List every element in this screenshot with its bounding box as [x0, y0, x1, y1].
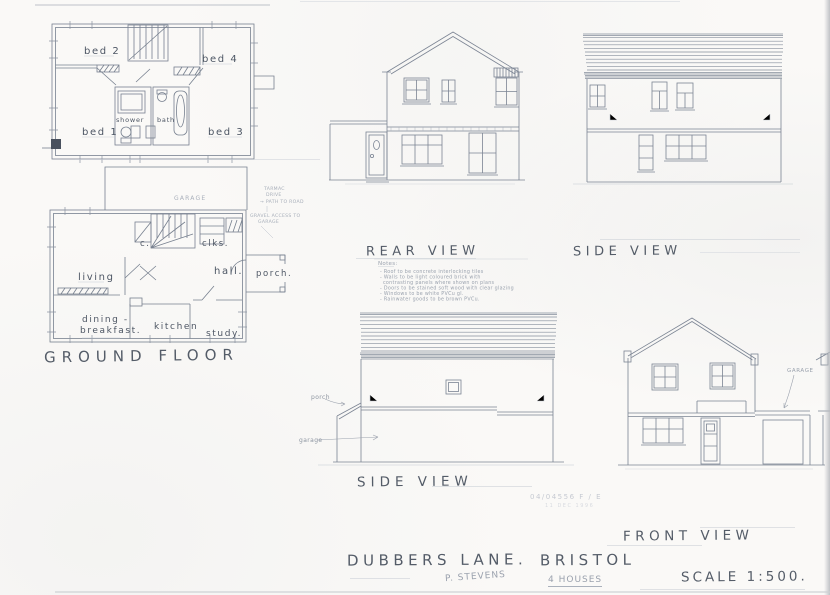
guide-rule [640, 589, 805, 590]
note-arrows [317, 399, 378, 440]
room-label-cloaks: clks. [202, 239, 229, 249]
notes-line-4: - Doors to be stained soft wood with cle… [380, 286, 514, 292]
rear-elevation-drawing [325, 28, 530, 246]
pencil-houses-note: 4 HOUSES [548, 575, 602, 587]
room-label-bed3: bed 3 [208, 127, 244, 138]
notes-line-3: contrasting panels where shown on plans [383, 280, 495, 286]
site-annotations: TARMAC DRIVE → PATH TO ROAD GRAVEL ACCES… [250, 186, 304, 225]
front-lines [618, 318, 830, 465]
notes-heading: Notes: [378, 261, 398, 267]
annotation-drive-2: DRIVE [266, 192, 282, 198]
side-elevation-bottom-drawing: porch garage [298, 293, 583, 498]
guide-rule [350, 578, 410, 579]
scan-edge-bottom [55, 591, 830, 593]
office-stamp-date: 11 DEC 1996 [545, 503, 594, 509]
first-floor-walls [42, 24, 274, 159]
guide-rule [600, 239, 800, 240]
guide-rule [700, 527, 795, 528]
roof-tile-lines [360, 313, 557, 359]
annotation-access-1: GRAVEL ACCESS TO [250, 213, 300, 219]
room-label-garage: GARAGE [174, 195, 206, 202]
first-floor-plan-drawing: bed 2 bed 4 bed 1 bed 3 shower bath [40, 8, 280, 176]
room-label-kitchen: kitchen [154, 322, 198, 332]
side-top-lines [587, 79, 781, 182]
annotation-drive-1: TARMAC [263, 186, 285, 192]
garage-note-arrow [784, 375, 794, 408]
scale-label: SCALE 1:500. [681, 568, 808, 585]
room-label-living: living [78, 272, 115, 283]
front-elevation-drawing: GARAGE [613, 308, 830, 478]
room-label-bed4: bed 4 [202, 54, 238, 65]
brick-band-ticks [391, 127, 511, 131]
guide-rule [75, 159, 320, 160]
pencil-author-note: P. STEVENS [445, 570, 506, 584]
scan-edge-top-mid [300, 1, 680, 2]
label-guidelines [82, 56, 242, 137]
room-label-cupboard: c. [140, 239, 151, 249]
annotation-access-2: GARAGE [258, 219, 279, 225]
pencil-setout-marks [573, 114, 793, 184]
side-view-top-label: SIDE VIEW [573, 244, 682, 260]
rear-elevation-lines [329, 32, 525, 182]
scan-edge-right [824, 0, 830, 595]
first-floor-window-ticks [49, 21, 258, 163]
guide-rule [700, 252, 800, 253]
notes-line-2: - Walls to be light coloured brick with [380, 275, 481, 281]
ground-floor-title: GROUND FLOOR [44, 346, 239, 367]
project-title-street: DUBBERS LANE. [347, 550, 527, 569]
room-label-shower: shower [116, 116, 144, 124]
scan-edge-top-left [35, 4, 270, 6]
room-label-bed1: bed 1 [82, 127, 118, 138]
guide-rule [356, 258, 476, 259]
side-view-bottom-label: SIDE VIEW [357, 473, 473, 490]
notes-line-1: - Roof to be concrete interlocking tiles [380, 269, 484, 275]
side-bottom-lines [333, 359, 564, 462]
room-label-bath: bath [157, 116, 175, 124]
room-label-bed2: bed 2 [84, 46, 120, 57]
project-title-city: BRISTOL [540, 551, 636, 570]
room-label-hall: hall. [214, 266, 243, 277]
room-label-porch: porch. [256, 269, 292, 279]
plan-corner-block [51, 139, 61, 149]
roof-tile-lines [583, 34, 783, 79]
garage-note: garage [299, 437, 323, 444]
guide-rule [432, 486, 532, 487]
room-label-study: study. [206, 329, 242, 339]
annotation-drive-3: → PATH TO ROAD [260, 199, 304, 205]
ground-floor-plan-drawing: living hall. kitchen study. dining - bre… [30, 160, 302, 370]
guide-rule [607, 545, 702, 546]
room-label-dining-1: dining - [82, 315, 129, 325]
front-view-label: FRONT VIEW [623, 527, 754, 544]
side-elevation-top-drawing [565, 22, 800, 227]
office-stamp-ref: 04/04556 F / E [530, 493, 602, 501]
room-label-dining-2: breakfast. [80, 326, 141, 336]
drawing-sheet: bed 2 bed 4 bed 1 bed 3 shower bath [0, 0, 830, 595]
front-garage-note: GARAGE [787, 368, 814, 374]
